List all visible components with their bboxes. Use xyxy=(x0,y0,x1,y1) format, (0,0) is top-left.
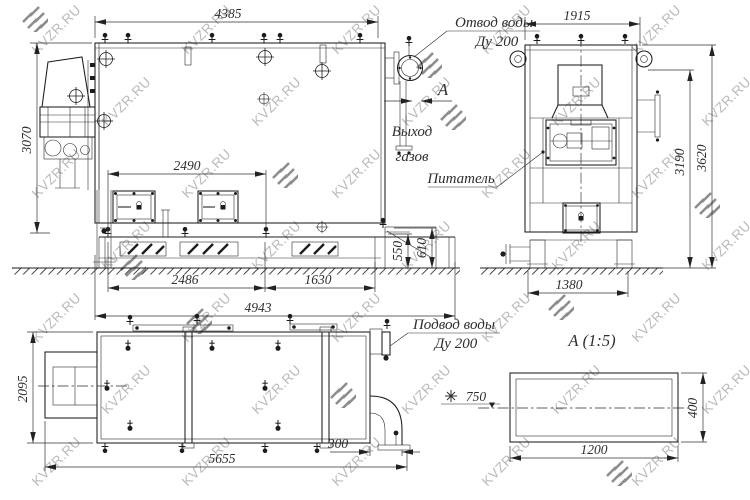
fuel-hopper xyxy=(552,65,608,118)
water-inlet-label-line2: Ду 200 xyxy=(433,336,478,352)
side-body xyxy=(525,36,637,242)
anchor-bolts-mid xyxy=(105,218,387,237)
detail-view: А (1:5) 1200 400 75 xyxy=(441,331,707,462)
access-door-right xyxy=(198,191,238,223)
lifting-lug-right xyxy=(636,51,652,67)
support-leg-right xyxy=(614,240,635,268)
gas-outlet-label-line1: Выход xyxy=(392,124,433,140)
feeder-label-text: Питатель xyxy=(426,171,495,187)
anchor-bolts-top xyxy=(102,33,364,43)
feeder-label: Питатель xyxy=(426,150,544,187)
dim-side-height-to-duct: 3190 xyxy=(672,148,687,176)
burner-assembly xyxy=(40,57,116,268)
plan-body xyxy=(97,324,370,448)
drain-pipe xyxy=(500,244,530,264)
dim-front-duct-height: 610 xyxy=(414,238,429,259)
level-mark-arrow xyxy=(489,403,495,409)
drawing-sheet: KVZR.RUKVZR.RUKVZR.RUKVZR.RUKVZR.RUKVZR.… xyxy=(0,0,750,500)
dim-front-height: 3070 xyxy=(19,126,34,154)
side-gas-duct xyxy=(637,90,660,141)
level-mark-value: 750 xyxy=(466,389,487,404)
water-inlet-label: Подвод воды Ду 200 xyxy=(390,317,500,352)
dim-front-door-span: 2490 xyxy=(174,158,201,173)
section-arrow: А xyxy=(421,80,452,101)
dim-front-base-width: 4943 xyxy=(245,300,272,315)
dim-side-overall-height: 3620 xyxy=(694,144,709,172)
dim-plan-depth: 2095 xyxy=(15,375,30,402)
level-mark: 750 xyxy=(441,389,500,408)
detail-dimensions: 1200 400 xyxy=(510,373,707,462)
gas-duct xyxy=(396,81,412,155)
side-dimensions: 1915 3190 3620 1380 xyxy=(525,8,716,297)
water-inlet-flange xyxy=(370,329,390,361)
dim-plan-pipe-offset: 300 xyxy=(327,436,349,451)
side-view: 1915 3190 3620 1380 Питатель xyxy=(426,8,716,297)
access-door-left xyxy=(113,191,155,223)
asterisk-icon xyxy=(445,390,457,402)
gas-outlet-label-line2: газов xyxy=(395,149,429,165)
technical-drawing: 4385 3070 2490 2486 1630 4943 xyxy=(0,0,750,500)
dim-plan-length: 5655 xyxy=(209,451,236,466)
water-outlet-label-line2: Ду 200 xyxy=(474,34,519,50)
gas-elbow-pipe xyxy=(370,396,410,450)
water-outlet-flange xyxy=(385,36,423,84)
plan-view: 2095 5655 300 Подвод воды Ду 200 xyxy=(15,314,500,471)
dim-detail-height: 400 xyxy=(685,398,700,419)
lifting-marks xyxy=(95,48,331,233)
dim-front-pan-height: 550 xyxy=(390,241,405,262)
dim-detail-width: 1200 xyxy=(581,442,608,457)
water-outlet-label-line1: Отвод воды xyxy=(455,15,533,31)
ground-hatch-front xyxy=(12,268,460,275)
lifting-lug-left xyxy=(510,51,526,67)
dim-front-ash-span: 1630 xyxy=(305,272,332,287)
side-access-door xyxy=(563,203,600,233)
support-leg-left xyxy=(527,240,548,268)
plan-bolts xyxy=(102,314,391,453)
detail-title: А (1:5) xyxy=(567,331,615,350)
grate-panels xyxy=(120,242,338,256)
dim-side-top-width: 1915 xyxy=(564,8,591,23)
dim-front-top-width: 4385 xyxy=(215,6,242,21)
burner-plan xyxy=(38,352,130,418)
water-inlet-label-line1: Подвод воды xyxy=(412,317,495,333)
detail-frame xyxy=(478,373,692,442)
dim-front-grate-span: 2486 xyxy=(172,272,199,287)
ground-hatch-side xyxy=(480,268,663,275)
dim-side-base-width: 1380 xyxy=(556,277,583,292)
plan-dimensions: 2095 5655 300 xyxy=(15,332,420,471)
section-arrow-letter: А xyxy=(437,80,449,99)
